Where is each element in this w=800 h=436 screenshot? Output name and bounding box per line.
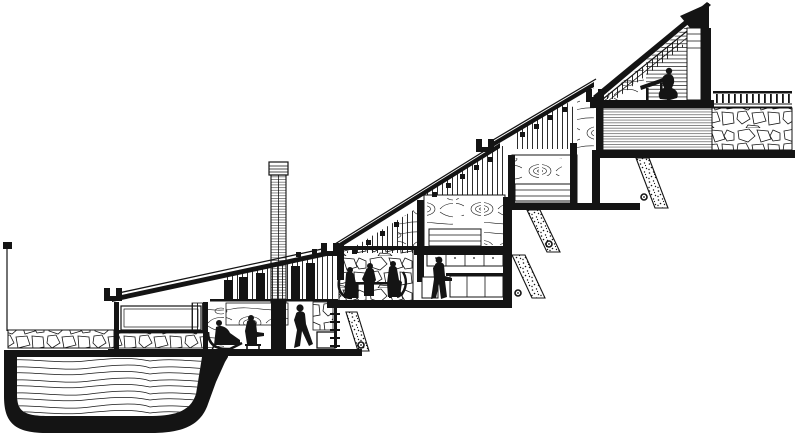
roof1-vent-b: [312, 249, 317, 254]
bedroom2-left-wall: [508, 155, 515, 203]
living-floor: [108, 349, 362, 356]
studio: [593, 2, 711, 103]
table-leg-left: [356, 285, 359, 298]
section-drawing: architectural-section-drawing: [0, 0, 800, 436]
terrace-railing: [713, 91, 792, 103]
swimming-pool: [4, 350, 228, 433]
studio-cabinet: [687, 28, 701, 100]
bedroom1-grain-mid: [456, 198, 481, 216]
studio-gable-grain: [600, 64, 644, 100]
roof1-vent-a: [296, 252, 301, 257]
dining-table-top: [346, 282, 400, 285]
pool-water-lines: [17, 357, 202, 416]
slat-panel: [192, 303, 204, 331]
base-cabinets: [450, 276, 503, 297]
understudio-siding: [603, 108, 712, 150]
bedroom1-grain-left: [427, 198, 453, 226]
railing-top-rail: [713, 91, 792, 94]
wedge-void: [636, 158, 668, 208]
fireplace-column: [271, 302, 286, 350]
bedroom2-floor: [512, 203, 640, 210]
bedroom2-platform: [515, 184, 573, 201]
section-drawing-page: architectural-section-drawing: [0, 0, 800, 436]
stool-base: [662, 100, 675, 103]
walking-figure: [294, 304, 313, 348]
studio-right-wall: [701, 28, 711, 103]
window-band: [121, 306, 201, 330]
bedroom1-floor: [414, 248, 512, 255]
stone-base: [114, 333, 206, 348]
chimney-cap: [269, 162, 288, 175]
bedroom2-grain-left: [515, 158, 539, 182]
studio-floor: [590, 100, 714, 108]
dining-kitchen-wall: [417, 200, 424, 282]
table-leg-right: [389, 285, 392, 298]
bedroom-1: [424, 195, 505, 248]
bedroom1-grain-right: [484, 198, 503, 245]
dining-floor: [327, 300, 512, 308]
wedge-bedroom2: [527, 210, 560, 252]
bed-platform: [429, 229, 481, 246]
chimney: [269, 162, 288, 350]
bedroom-2: [508, 143, 577, 205]
entry-carport-wing: [114, 302, 224, 349]
bedroom2-right-wall: [570, 143, 577, 205]
understudio-left-wall: [596, 100, 603, 150]
wall-cap: [3, 242, 12, 249]
left-garden-wall: [3, 242, 114, 348]
gable-grain-dining: [398, 208, 417, 253]
railing-balusters: [716, 94, 790, 103]
terrace-deck-lines: [712, 104, 792, 107]
stool-pedestal: [667, 93, 670, 101]
stool-seat: [663, 90, 674, 93]
stone-band-left: [8, 330, 114, 348]
bedroom2-grain-right: [542, 158, 562, 176]
void-left-wall: [592, 150, 600, 207]
ground-slab: [594, 150, 795, 158]
kitchen-right-wall: [503, 197, 512, 303]
terrace-stone-wall: [712, 108, 792, 150]
